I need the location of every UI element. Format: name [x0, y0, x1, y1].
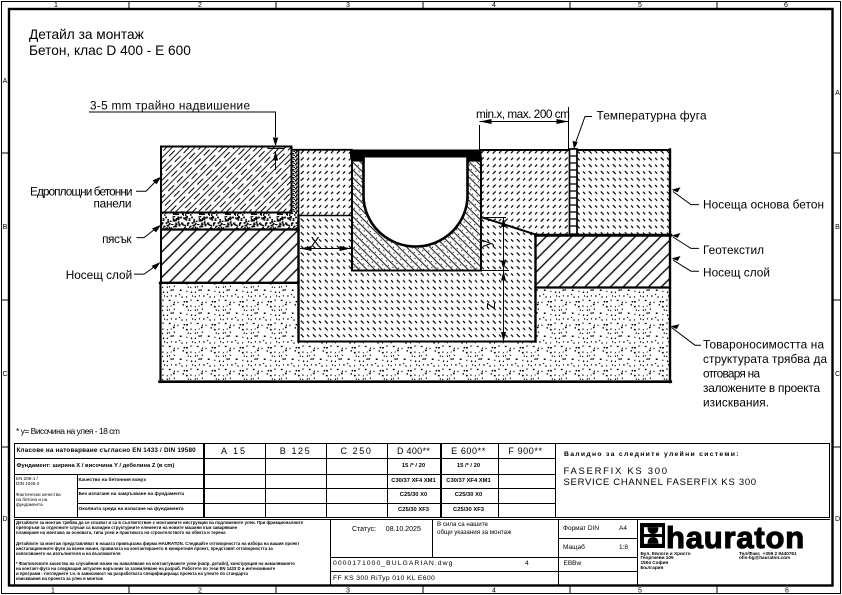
svg-text:5: 5 — [638, 588, 642, 595]
svg-text:Носещ слой: Носещ слой — [66, 268, 133, 282]
svg-text:C: C — [2, 371, 7, 378]
svg-text:5: 5 — [638, 2, 642, 9]
svg-text:1: 1 — [54, 2, 58, 9]
svg-text:A: A — [835, 90, 840, 97]
svg-text:2: 2 — [198, 588, 202, 595]
svg-text:B: B — [835, 224, 840, 231]
svg-text:изисквания.: изисквания. — [703, 395, 769, 409]
svg-text:Носещ слой: Носещ слой — [703, 266, 770, 280]
svg-text:панели: панели — [94, 196, 132, 210]
svg-text:отговаря на: отговаря на — [703, 366, 760, 380]
svg-text:Товароносимостта на: Товароносимостта на — [703, 337, 824, 351]
svg-text:X: X — [311, 234, 321, 250]
svg-text:3-5 mm трайно надвишение: 3-5 mm трайно надвишение — [90, 99, 250, 113]
svg-text:Температурна фуга: Температурна фуга — [597, 109, 707, 123]
svg-text:заложените в проекта: заложените в проекта — [703, 381, 820, 395]
svg-text:пясък: пясък — [102, 232, 132, 246]
svg-text:6: 6 — [785, 588, 789, 595]
svg-text:y: y — [479, 239, 495, 247]
svg-text:4: 4 — [492, 588, 496, 595]
svg-text:C: C — [835, 371, 840, 378]
svg-text:D: D — [835, 516, 840, 523]
svg-text:Носеща основа бетон: Носеща основа бетон — [703, 197, 824, 211]
svg-text:4: 4 — [492, 2, 496, 9]
svg-text:B: B — [3, 224, 8, 231]
svg-text:2: 2 — [198, 2, 202, 9]
svg-text:A: A — [3, 78, 8, 85]
svg-text:3: 3 — [346, 588, 350, 595]
svg-text:D: D — [2, 516, 7, 523]
svg-text:min.x, max. 200 cm: min.x, max. 200 cm — [476, 107, 570, 121]
svg-text:6: 6 — [784, 2, 788, 9]
svg-text:z: z — [483, 302, 499, 309]
svg-text:1: 1 — [51, 588, 55, 595]
svg-text:* y= Височина на улея - 18 cm: * y= Височина на улея - 18 cm — [16, 426, 120, 436]
svg-text:3: 3 — [346, 2, 350, 9]
svg-text:Геотекстил: Геотекстил — [703, 243, 764, 257]
svg-text:структурата трябва да: структурата трябва да — [703, 352, 827, 366]
